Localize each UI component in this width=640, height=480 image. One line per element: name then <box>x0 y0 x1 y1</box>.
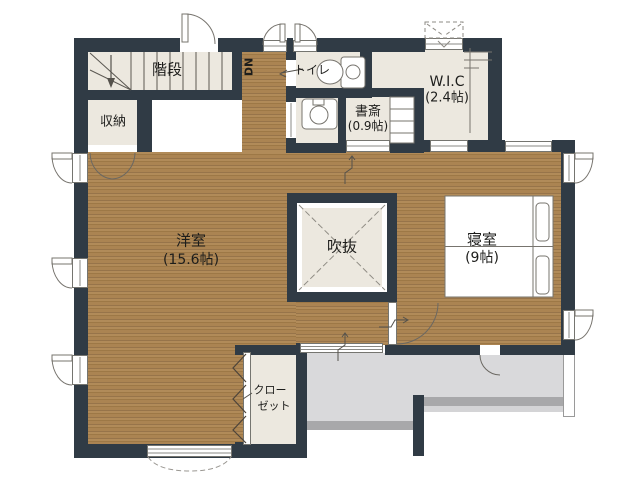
west-window-1 <box>72 153 88 183</box>
balcony-divider-wall <box>413 395 424 456</box>
wall <box>137 100 152 152</box>
balcony-edge-right <box>424 406 563 412</box>
storage-label: 収納 <box>100 116 126 129</box>
wic-highwindow-symbol <box>425 22 463 38</box>
wall <box>232 52 242 100</box>
wall <box>385 345 480 355</box>
balcony-side-wall <box>563 353 575 417</box>
wic-area-label: (2.4帖) <box>425 92 469 105</box>
wall <box>286 143 346 153</box>
void-label: 吹抜 <box>327 240 357 255</box>
wall <box>338 97 346 143</box>
wic-window <box>425 38 463 50</box>
study-label: 書斎 <box>355 106 381 119</box>
western-room-south-window <box>147 445 232 457</box>
closet-floor <box>250 353 296 444</box>
study-sliding-door <box>346 140 390 152</box>
wall <box>338 88 424 97</box>
bedroom-area-label: (9帖) <box>465 251 499 265</box>
closet-door-track <box>243 352 251 445</box>
void-wall <box>287 292 397 302</box>
west-window-2 <box>72 258 88 288</box>
balcony-floor-right <box>424 353 563 397</box>
west-casement-symbols <box>52 153 72 385</box>
bedroom-floor <box>397 152 561 345</box>
balcony-railing-left <box>307 421 413 430</box>
corridor-above-void-floor <box>296 152 397 193</box>
wall <box>488 38 502 152</box>
wic-entrance <box>430 140 468 152</box>
western-room-label: 洋室 <box>176 234 206 249</box>
wall <box>500 345 563 355</box>
west-window-3 <box>72 355 88 385</box>
wall <box>317 38 425 52</box>
balcony-floor-left <box>307 353 424 421</box>
study-area-label: (0.9帖) <box>348 120 388 132</box>
wall <box>218 38 263 52</box>
east-casement-symbols <box>575 153 593 340</box>
closet-label-line2: ゼット <box>258 401 291 412</box>
void-wall <box>287 193 397 203</box>
corridor-below-void-floor <box>296 300 397 345</box>
wall <box>296 345 307 458</box>
wall <box>74 38 88 458</box>
void-wall <box>287 193 297 302</box>
void-wall <box>387 193 397 302</box>
wall <box>88 90 232 100</box>
corridor-balcony-window <box>300 343 383 353</box>
bedroom-north-window <box>505 141 552 152</box>
balcony-railing-right <box>424 397 563 406</box>
top-door-opening <box>180 40 218 52</box>
washroom-door-opening <box>286 102 296 138</box>
south-window-dashed-arc <box>148 457 231 471</box>
wic-label: W.I.C <box>429 75 464 89</box>
stairs-label: 階段 <box>152 63 182 78</box>
top-window-1 <box>263 40 287 52</box>
dn-label: DN <box>244 58 255 76</box>
wall <box>360 52 372 88</box>
toilet-label: トイレ <box>294 64 330 76</box>
bedroom-door-leaf <box>388 302 397 345</box>
bedroom-east-window-1 <box>563 153 575 183</box>
bedroom-label: 寝室 <box>467 233 497 248</box>
bedroom-east-window-2 <box>563 310 575 340</box>
top-window-2 <box>293 40 317 52</box>
washroom-floor <box>296 98 338 143</box>
closet-label-line1: クロー <box>254 385 287 396</box>
storage-door-opening <box>88 145 137 152</box>
wall <box>74 38 180 52</box>
balcony-door-opening <box>480 345 500 355</box>
western-room-area-label: (15.6帖) <box>163 253 219 267</box>
floor-plan: 階段 DN 収納 トイレ W.I.C (2.4帖) 書斎 (0.9帖) 洋室 (… <box>0 0 640 480</box>
